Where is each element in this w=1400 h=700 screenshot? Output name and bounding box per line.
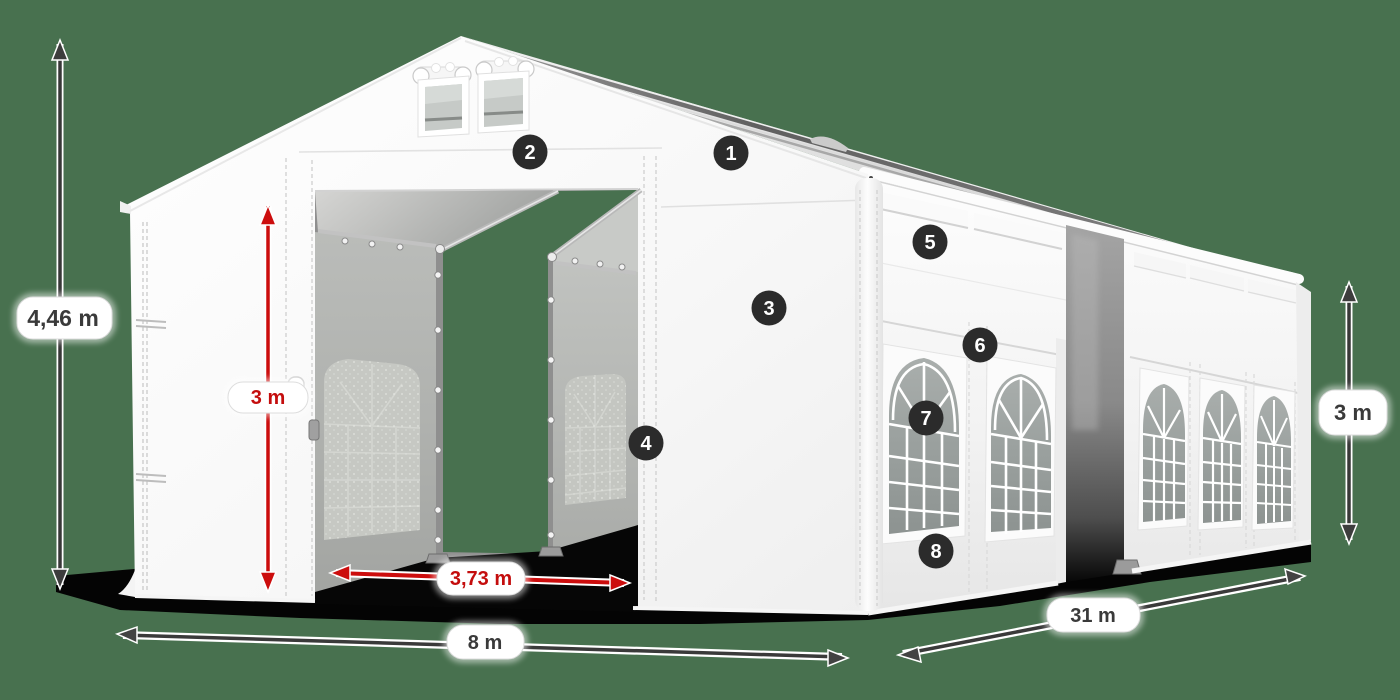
svg-text:31 m: 31 m [1070, 605, 1116, 627]
svg-text:8: 8 [930, 541, 941, 563]
svg-text:2: 2 [524, 142, 535, 164]
svg-text:3: 3 [763, 298, 774, 320]
svg-text:6: 6 [974, 335, 985, 357]
svg-text:8 m: 8 m [468, 632, 502, 654]
svg-text:5: 5 [924, 232, 935, 254]
svg-text:3,73 m: 3,73 m [450, 568, 512, 590]
svg-text:1: 1 [725, 143, 736, 165]
svg-text:3 m: 3 m [1334, 400, 1372, 425]
svg-text:4: 4 [640, 433, 652, 455]
svg-text:4,46 m: 4,46 m [27, 305, 99, 331]
svg-text:7: 7 [920, 408, 931, 430]
svg-text:3 m: 3 m [251, 387, 285, 409]
